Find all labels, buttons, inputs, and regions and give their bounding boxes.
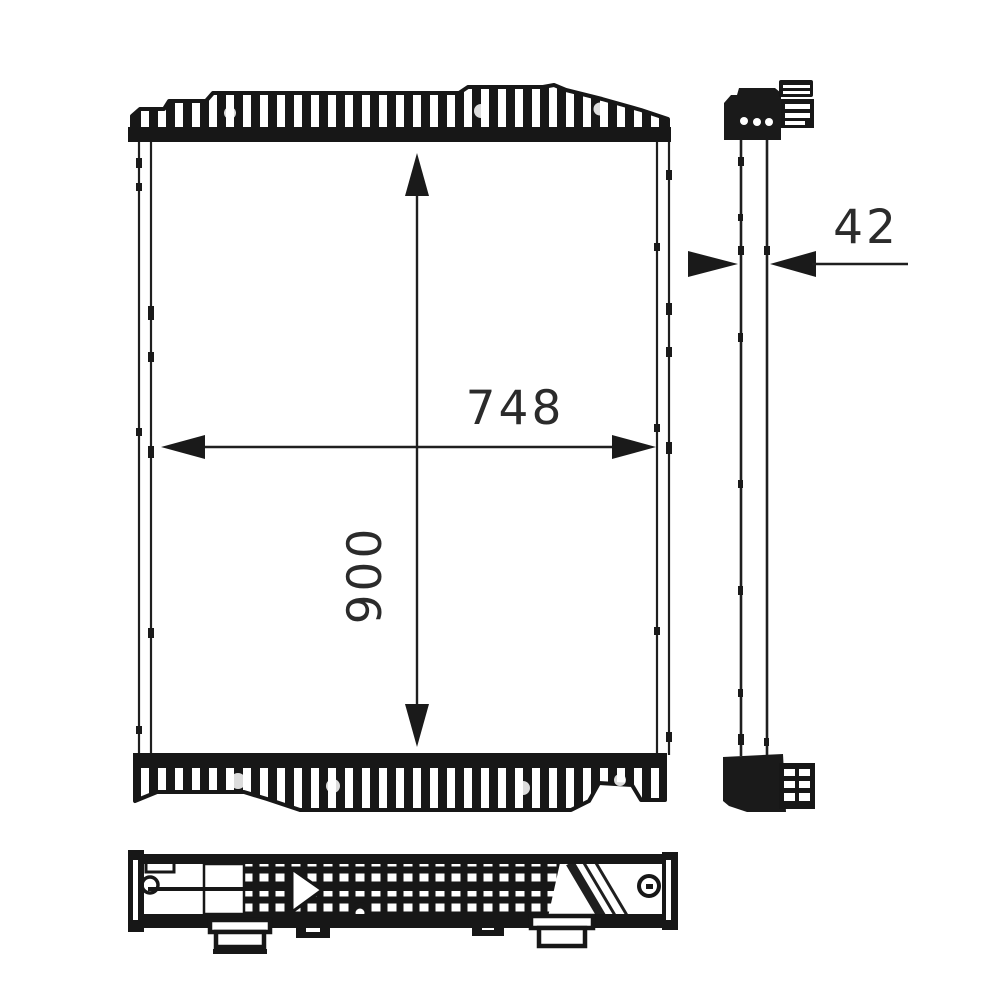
side-top-inlet-pipe xyxy=(779,80,814,128)
top-tank-bottom-bar xyxy=(128,127,671,142)
height-arrow-up xyxy=(405,153,429,196)
side-core-fasteners xyxy=(738,157,770,746)
depth-dim-label: 42 xyxy=(833,200,899,255)
side-view xyxy=(723,80,815,812)
bottom-view xyxy=(128,850,678,954)
front-right-frame xyxy=(654,141,672,755)
width-dimension: 748 xyxy=(161,381,656,459)
top-tank-boss xyxy=(474,104,488,118)
bottom-view-top-rail xyxy=(142,854,664,864)
bottom-tank-top-bar xyxy=(133,753,667,768)
side-top-tank-rivet xyxy=(740,117,748,125)
height-arrow-down xyxy=(405,704,429,747)
bottom-view-right-details xyxy=(548,863,662,917)
side-top-tank-body xyxy=(724,88,781,140)
right-outlet-notch xyxy=(646,884,653,889)
left-end-cap-slot xyxy=(133,860,138,920)
depth-arrow-left xyxy=(688,251,738,277)
height-dim-label: 900 xyxy=(338,526,393,625)
bottom-tank-boss xyxy=(614,774,626,786)
radiator-technical-drawing: 900 748 xyxy=(0,0,1000,1000)
front-top-tank xyxy=(128,85,671,142)
side-core xyxy=(738,140,770,756)
top-tank-boss xyxy=(594,103,607,116)
side-bottom-outlet-pipe xyxy=(779,763,815,809)
drawing-canvas: 900 748 xyxy=(0,0,1000,1000)
bottom-tank-boss xyxy=(326,779,340,793)
depth-arrow-right xyxy=(770,251,816,277)
bottom-tank-boss xyxy=(230,773,246,789)
width-dim-label: 748 xyxy=(466,381,565,436)
top-tank-boss xyxy=(224,107,236,119)
width-arrow-right xyxy=(612,435,656,459)
front-bottom-tank xyxy=(133,753,667,810)
right-end-cap-slot xyxy=(666,860,671,920)
mount-foot-right xyxy=(531,916,593,946)
bottom-tank-boss xyxy=(516,781,530,795)
side-top-tank-rivet xyxy=(765,118,773,126)
height-dimension: 900 xyxy=(338,153,429,747)
side-bottom-tank-body xyxy=(723,754,786,812)
side-bottom-tank xyxy=(723,754,815,812)
side-top-tank-rivet xyxy=(753,118,761,126)
width-arrow-left xyxy=(161,435,205,459)
side-top-tank xyxy=(724,80,814,140)
front-left-frame xyxy=(136,141,154,755)
mount-foot-left xyxy=(210,920,270,954)
depth-dimension: 42 xyxy=(688,200,908,277)
